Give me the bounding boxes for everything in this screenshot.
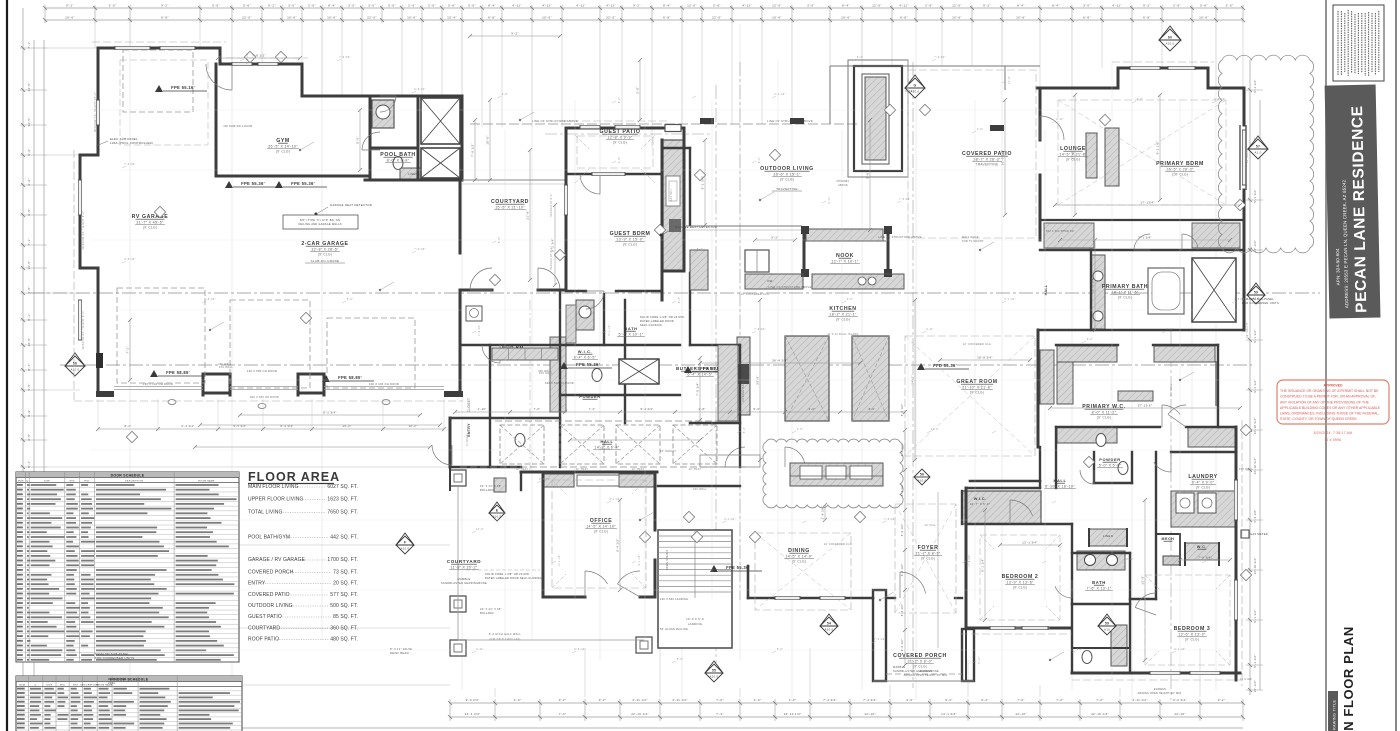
svg-text:GARAGE HEAT DETECTOR: GARAGE HEAT DETECTOR [330,203,372,207]
svg-text:CEILING AND GARAGE WALLS: CEILING AND GARAGE WALLS [298,223,342,226]
svg-text:22'-10 1/4": 22'-10 1/4" [1091,712,1109,716]
svg-text:21'-9": 21'-9" [526,210,530,219]
svg-text:A10.0: A10.0 [918,479,927,483]
svg-text:3'-1 1/2": 3'-1 1/2" [609,498,620,501]
svg-text:W.I.C.: W.I.C. [974,496,987,501]
svg-text:12'-0": 12'-0" [952,4,962,8]
svg-text:85 SQ. FT.: 85 SQ. FT. [333,614,358,620]
svg-text:5'-4 1/2": 5'-4 1/2" [900,639,904,652]
svg-text:4'-11": 4'-11" [576,4,585,8]
svg-text:3'-0": 3'-0" [348,4,356,8]
svg-text:7'-6 3/4": 7'-6 3/4" [884,518,895,521]
svg-text:9'-2": 9'-2" [1218,698,1225,702]
svg-text:22'-0": 22'-0" [606,16,616,20]
svg-text:COFFEE BAR: COFFEE BAR [741,382,745,402]
svg-text:600 X 500 DX DOOR: 600 X 500 DX DOOR [545,382,574,385]
svg-text:12'-10": 12'-10" [864,712,875,716]
svg-text:9'-1 1/2": 9'-1 1/2" [1253,609,1257,622]
svg-text:HALL: HALL [1053,478,1066,483]
svg-text:18'-8 3/4": 18'-8 3/4" [977,356,993,360]
svg-text:2'-8": 2'-8" [618,157,621,163]
svg-text:2'-4 3/4": 2'-4 3/4" [821,506,825,520]
svg-text:FPE 55.36': FPE 55.36' [241,181,265,186]
svg-text:6'-8 1/2": 6'-8 1/2" [539,478,550,481]
svg-text:POOL BATH/GYM: POOL BATH/GYM [248,535,290,541]
svg-text:POWDER: POWDER [1099,457,1121,462]
svg-text:100A (POOL CONTROLLER): 100A (POOL CONTROLLER) [110,141,153,145]
svg-text:6'-10" X 18'-10": 6'-10" X 18'-10" [1045,485,1075,489]
svg-text:4'-11": 4'-11" [1056,118,1064,121]
svg-text:13'-6" X 13'-0": 13'-6" X 13'-0" [1178,633,1206,637]
svg-text:73 SQ. FT.: 73 SQ. FT. [333,570,358,576]
svg-text:140 X 500 OH DOOR: 140 X 500 OH DOOR [247,369,277,373]
svg-text:9'-2": 9'-2" [1207,558,1213,561]
svg-text:Q: Q [35,684,37,686]
svg-text:(9' CLG): (9' CLG) [1118,296,1132,300]
svg-text:WINDOW DR. HEIGHT 14'-0": WINDOW DR. HEIGHT 14'-0" [94,92,97,132]
svg-text:(9' CLG): (9' CLG) [970,391,984,395]
svg-text:22'-0": 22'-0" [242,16,252,20]
svg-text:3'-0": 3'-0" [808,407,815,411]
svg-text:10'-6": 10'-6" [841,16,851,20]
svg-text:(9' CLG): (9' CLG) [913,665,927,669]
svg-text:ROOM NAME: ROOM NAME [198,479,215,482]
svg-text:9'-2": 9'-2" [1143,4,1151,8]
svg-text:7'-0": 7'-0" [1017,698,1024,702]
svg-text:50' GLASS RAILING: 50' GLASS RAILING [660,628,688,631]
svg-text:(9' CLG): (9' CLG) [921,557,935,561]
svg-text:BOLLARD: BOLLARD [480,612,494,615]
svg-text:26'-5" X 14'-10": 26'-5" X 14'-10" [268,145,298,149]
svg-text:18'-2" X 21'-1": 18'-2" X 21'-1" [829,313,857,317]
svg-text:FPE 58.85': FPE 58.85' [166,370,190,375]
svg-text:5'-0": 5'-0" [347,298,353,301]
svg-text:3'-1 1/2": 3'-1 1/2" [1174,648,1185,651]
svg-text:LAWS, ORDINANCES, INCLUDING TH: LAWS, ORDINANCES, INCLUDING THOSE OF THE… [1280,412,1379,416]
svg-text:56: 56 [920,473,924,477]
svg-text:8'-4": 8'-4" [1052,4,1060,8]
svg-text:10'-7" X 5'-0": 10'-7" X 5'-0" [970,502,990,506]
svg-text:HEADER AT 6'-1": HEADER AT 6'-1" [550,246,553,270]
svg-text:7'-4 3/4": 7'-4 3/4" [823,698,837,702]
svg-text:3'-0": 3'-0" [109,4,117,8]
svg-text:10'-6": 10'-6" [65,16,75,20]
svg-text:36'-4 3/4": 36'-4 3/4" [772,359,788,363]
svg-text:2'-8": 2'-8" [977,128,983,131]
svg-text:10'-6": 10'-6" [327,16,337,20]
svg-text:8'-4": 8'-4" [328,4,336,8]
svg-text:6'-8 1/2": 6'-8 1/2" [1214,98,1225,101]
svg-text:DAC WFL: DAC WFL [670,188,673,202]
svg-text:REINF BEAM: REINF BEAM [390,651,409,655]
svg-text:6'-5": 6'-5" [27,383,31,390]
svg-text:9'-2 3/4": 9'-2 3/4" [641,407,654,411]
svg-text:12'-3 3/4": 12'-3 3/4" [1091,277,1095,293]
svg-text:4'-11": 4'-11" [512,4,521,8]
svg-text:(9' CLG): (9' CLG) [780,178,794,182]
svg-text:ID # 5996: ID # 5996 [1325,438,1342,442]
svg-text:900 X 500 DH DOOR: 900 X 500 DH DOOR [250,396,279,399]
svg-text:6027 SQ. FT.: 6027 SQ. FT. [327,484,358,490]
svg-text:15'-5" X 21'-10": 15'-5" X 21'-10" [495,206,525,210]
svg-text:7'-3": 7'-3" [716,712,723,716]
svg-text:6'-8": 6'-8" [663,16,671,20]
svg-text:8'-4": 8'-4" [488,4,496,8]
svg-text:9'-2": 9'-2" [758,157,761,163]
svg-text:9'-1 1/2": 9'-1 1/2" [1253,379,1257,392]
svg-text:9'-2": 9'-2" [66,4,74,8]
svg-text:SANDBLASTED HERRINGBONE: SANDBLASTED HERRINGBONE [441,581,487,585]
svg-text:2'-6": 2'-6" [1173,4,1181,8]
svg-text:APPROVED: APPROVED [1323,384,1343,388]
svg-text:10'-2": 10'-2" [409,424,418,428]
svg-text:GARAGE / RV GARAGE: GARAGE / RV GARAGE [248,557,306,563]
svg-text:5'-0": 5'-0" [1137,98,1143,101]
svg-text:37'-19.6": 37'-19.6" [1138,404,1153,408]
svg-text:10' COFFERED CLG: 10' COFFERED CLG [741,293,769,296]
svg-text:6'-5": 6'-5" [27,286,31,293]
svg-text:5'-0": 5'-0" [777,648,783,651]
svg-text:10'-6": 10'-6" [1199,16,1209,20]
svg-text:39'-6" X 15'-1": 39'-6" X 15'-1" [773,173,801,177]
svg-text:APN: 304-90-604: APN: 304-90-604 [1335,248,1341,285]
svg-text:4'-11": 4'-11" [828,196,831,204]
svg-text:9'-1 1/2": 9'-1 1/2" [1253,654,1257,667]
svg-text:4'-11": 4'-11" [542,4,551,8]
svg-text:7'-9 1/2": 7'-9 1/2" [471,143,475,157]
svg-text:100 X 500 LANDING: 100 X 500 LANDING [660,598,688,601]
svg-text:9'-2": 9'-2" [1077,648,1083,651]
svg-text:A10.0: A10.0 [1166,42,1175,46]
svg-text:2X6 WALL: 2X6 WALL [1239,468,1254,471]
svg-text:12' TRAY: 12' TRAY [689,468,702,471]
svg-text:9'-1 1/2": 9'-1 1/2" [1253,79,1257,92]
svg-text:9'-1 1/2": 9'-1 1/2" [1253,189,1257,202]
svg-text:5'-4 1/2": 5'-4 1/2" [900,444,904,457]
svg-text:CLOSET: CLOSET [467,398,471,413]
svg-text:(9' CLG): (9' CLG) [1196,486,1210,490]
svg-text:54: 54 [827,622,831,626]
svg-text:8'-4": 8'-4" [663,4,671,8]
svg-text:31'-2" X 8'-0": 31'-2" X 8'-0" [908,660,933,664]
svg-text:THE ISSUANCE OR GRANTING OF A: THE ISSUANCE OR GRANTING OF A PERMIT SHA… [1280,389,1379,393]
svg-text:5'-6": 5'-6" [713,4,721,8]
svg-text:10'-6": 10'-6" [952,16,962,20]
svg-text:7'-1": 7'-1" [27,41,31,48]
svg-text:6'-8 1/2": 6'-8 1/2" [574,648,585,651]
svg-text:60: 60 [1168,36,1172,40]
svg-text:27'-3/4": 27'-3/4" [1253,240,1257,252]
svg-text:6'-8": 6'-8" [1143,16,1151,20]
svg-text:DESCRIPTION: DESCRIPTION [125,480,143,482]
svg-text:4'-11": 4'-11" [742,4,751,8]
svg-text:4'-11": 4'-11" [899,4,908,8]
svg-text:480 SQ. FT.: 480 SQ. FT. [330,637,358,643]
svg-text:GARAGE HEAT DETECTOR: GARAGE HEAT DETECTOR [675,225,717,229]
svg-text:7'-4 3/4": 7'-4 3/4" [863,698,877,702]
svg-text:6'-8 1/2": 6'-8 1/2" [124,258,135,261]
svg-text:14'-5" X 14'-9": 14'-5" X 14'-9" [785,555,813,559]
svg-text:9'-2": 9'-2" [511,32,518,36]
svg-text:17'-0": 17'-0" [1071,150,1075,159]
svg-text:5'-0": 5'-0" [677,658,683,661]
svg-text:7'-0": 7'-0" [1096,698,1103,702]
svg-text:7'-6 3/4": 7'-6 3/4" [934,56,945,59]
svg-text:14'-5": 14'-5" [27,337,31,346]
svg-text:A10.0: A10.0 [493,515,502,519]
svg-text:1700 SQ. FT.: 1700 SQ. FT. [327,557,358,563]
svg-text:(9' CLG): (9' CLG) [276,150,290,154]
svg-text:LINEN: LINEN [1103,534,1113,538]
svg-text:7'-6 3/4": 7'-6 3/4" [968,554,971,565]
svg-text:9'-2": 9'-2" [161,4,169,8]
svg-text:(9' CLG): (9' CLG) [1097,416,1111,420]
svg-text:2'-6": 2'-6" [428,4,436,8]
svg-text:9'-1 1/2": 9'-1 1/2" [1253,329,1257,342]
svg-text:3'-1 1/2": 3'-1 1/2" [774,93,785,96]
svg-text:POWDER: POWDER [579,394,601,399]
svg-text:8'-4": 8'-4" [842,4,850,8]
svg-text:8'-4": 8'-4" [1017,4,1025,8]
svg-text:4'-11": 4'-11" [1166,328,1174,331]
svg-text:500 SQ. FT.: 500 SQ. FT. [330,603,358,609]
svg-text:10'-6": 10'-6" [287,16,297,20]
svg-text:5'-4 1/2": 5'-4 1/2" [900,484,904,497]
svg-text:SEMA DR SUB-PANEL: SEMA DR SUB-PANEL [1242,297,1274,301]
svg-text:A10.0: A10.0 [71,368,80,372]
svg-text:4'-0": 4'-0" [789,698,796,702]
svg-text:360 SQ. FT.: 360 SQ. FT. [330,626,358,632]
svg-text:12'-7" X 10'-1": 12'-7" X 10'-1" [831,260,859,264]
svg-text:COVERED PATIO: COVERED PATIO [248,592,290,598]
svg-text:5'-4 1/2": 5'-4 1/2" [900,524,904,537]
svg-text:8'-2": 8'-2" [124,424,131,428]
svg-text:6'-8 1/2": 6'-8 1/2" [414,88,425,91]
svg-text:38'-7" X 26'-3": 38'-7" X 26'-3" [973,158,1001,162]
svg-text:FOR CONDENSER UNITS: FOR CONDENSER UNITS [95,656,134,660]
svg-text:18'-1" X 11'-5": 18'-1" X 11'-5" [1112,291,1139,295]
svg-text:2'-8": 2'-8" [847,298,853,301]
svg-text:(9' CLG): (9' CLG) [623,243,637,247]
svg-text:12'-10 3/4": 12'-10 3/4" [1253,417,1257,434]
svg-text:WID: WID [70,480,75,482]
svg-text:6'-4 1/2": 6'-4 1/2" [616,538,620,552]
svg-text:6'-5": 6'-5" [27,208,31,215]
svg-text:4'-11": 4'-11" [1126,558,1134,561]
svg-text:W.I.C.: W.I.C. [578,349,593,354]
svg-text:ROOF PATIO: ROOF PATIO [248,637,279,643]
svg-text:DM WALL: DM WALL [1170,383,1173,397]
svg-text:5'-6": 5'-6" [1200,4,1208,8]
svg-text:17'-13/4": 17'-13/4" [1140,201,1155,205]
svg-text:2'-6": 2'-6" [408,4,416,8]
svg-text:Q: Q [26,480,28,482]
svg-text:SIZE: SIZE [44,480,50,482]
svg-text:STATE, COUNTY, OR TOWN OF QUEE: STATE, COUNTY, OR TOWN OF QUEEN CREEK. [1280,417,1358,421]
svg-text:5'-6": 5'-6" [356,136,360,143]
svg-text:APPLICABLE BUILDING CODES OR A: APPLICABLE BUILDING CODES OR ANY OTHER A… [1280,406,1381,410]
svg-text:10'-2": 10'-2" [343,424,352,428]
svg-text:3'-1 1/2": 3'-1 1/2" [1004,298,1015,301]
svg-text:6'-8": 6'-8" [900,16,908,20]
svg-text:5'-0": 5'-0" [678,297,681,303]
svg-text:12'-0": 12'-0" [687,4,697,8]
svg-text:(9' CLG): (9' CLG) [1185,638,1199,642]
svg-text:SELF-CLOSING: SELF-CLOSING [640,324,662,327]
svg-text:10' COFFERED CLG: 10' COFFERED CLG [824,543,852,546]
svg-text:6'-8": 6'-8" [161,16,169,20]
svg-text:2'-8": 2'-8" [698,407,705,411]
svg-text:3'-1 1/2": 3'-1 1/2" [724,518,735,521]
svg-text:9'-2": 9'-2" [945,698,952,702]
svg-text:COVERED PORCH: COVERED PORCH [248,570,294,576]
svg-text:4'-11": 4'-11" [606,4,615,8]
svg-text:7'-3": 7'-3" [559,712,566,716]
svg-text:22'-10 1/4": 22'-10 1/4" [784,712,802,716]
svg-text:6'-8 1/2": 6'-8 1/2" [246,52,249,63]
svg-text:9'-4" X 9'-0": 9'-4" X 9'-0" [1192,481,1215,485]
svg-text:12'-10": 12'-10" [1015,712,1026,716]
svg-text:6'-8 1/2": 6'-8 1/2" [204,298,215,301]
svg-text:56: 56 [73,362,77,366]
svg-text:UPPER FLOOR LIVING: UPPER FLOOR LIVING [248,497,303,503]
svg-text:SLAB-ON-GRADE: SLAB-ON-GRADE [311,259,340,263]
svg-text:577 SQ. FT.: 577 SQ. FT. [330,592,358,598]
svg-text:E: E [496,509,499,513]
svg-text:7'-6 3/4": 7'-6 3/4" [1234,298,1245,301]
svg-text:A10.0: A10.0 [401,547,410,551]
svg-text:10'-0": 10'-0" [486,135,490,144]
svg-text:7'-8 1/2": 7'-8 1/2" [252,54,266,58]
svg-text:5'-4 1/2": 5'-4 1/2" [900,604,904,617]
svg-text:AWNING OPEN HEIGHT 36" MIN.: AWNING OPEN HEIGHT 36" MIN. [1138,692,1183,695]
svg-text:9'-2": 9'-2" [983,4,991,8]
svg-text:24' SOFFIT: 24' SOFFIT [660,449,676,453]
svg-text:2'-0": 2'-0" [636,86,640,93]
svg-text:16'-9 1/2": 16'-9 1/2" [1001,150,1005,166]
svg-text:10'-0 X 5'-0: 10'-0 X 5'-0 [686,617,704,621]
svg-text:22'-0": 22'-0" [712,16,722,20]
svg-text:8'-0" X 8'-8": 8'-0" X 8'-8" [387,159,410,163]
svg-text:4'-11 1/2": 4'-11 1/2" [632,698,647,702]
svg-text:8'-6": 8'-6" [868,407,875,411]
svg-text:ELEC PANEL 'A': ELEC PANEL 'A' [108,677,132,681]
svg-text:7'-6 3/4": 7'-6 3/4" [339,56,350,59]
svg-text:A10.0: A10.0 [710,675,719,679]
svg-text:9'-2": 9'-2" [697,248,703,251]
svg-text:3'-1 1/2": 3'-1 1/2" [558,554,561,565]
svg-text:6'-4" X 6'-5": 6'-4" X 6'-5" [574,356,597,360]
svg-text:4'-11 1/2": 4'-11 1/2" [1132,698,1147,702]
svg-text:8'-1": 8'-1" [27,363,31,370]
svg-text:442 SQ. FT.: 442 SQ. FT. [330,535,358,541]
svg-text:20 SQ. FT.: 20 SQ. FT. [333,581,358,587]
svg-text:2'-6": 2'-6" [308,4,316,8]
svg-text:5'-1 3/4": 5'-1 3/4" [701,176,705,190]
svg-text:24" X 24" X 48": 24" X 24" X 48" [480,485,502,488]
svg-text:3'-0": 3'-0" [807,4,815,8]
svg-text:SIZE: SIZE [46,684,52,686]
svg-text:3'-1 1/2": 3'-1 1/2" [638,554,641,565]
svg-text:NO KAM DN LOUVR: NO KAM DN LOUVR [224,124,253,128]
svg-text:G: G [914,84,917,88]
svg-text:MECH: MECH [1162,537,1175,541]
svg-text:AWNING OPEN HEIGHT 36" MIN.: AWNING OPEN HEIGHT 36" MIN. [904,674,949,677]
svg-text:5'-0": 5'-0" [498,237,501,243]
svg-text:42 X 42 DUAL ISLAND: 42 X 42 DUAL ISLAND [827,333,858,336]
svg-text:5'-6": 5'-6" [243,4,251,8]
svg-text:10'-6": 10'-6" [542,16,552,20]
svg-text:12'-0": 12'-0" [931,428,939,431]
svg-text:HGT: HGT [73,684,79,686]
svg-text:COURTYARD: COURTYARD [248,626,280,632]
svg-text:22'-0": 22'-0" [367,16,377,20]
svg-text:NUM: NUM [18,480,24,482]
svg-text:3'-0": 3'-0" [1226,4,1234,8]
svg-text:10'-6": 10'-6" [407,16,417,20]
svg-text:CHIMNEY: CHIMNEY [836,180,849,183]
svg-text:FOR CONDENSER UNITS: FOR CONDENSER UNITS [1242,301,1279,305]
svg-text:6'-2 3/4": 6'-2 3/4" [182,424,195,428]
svg-text:9'-0 3/4": 9'-0 3/4" [1173,698,1187,702]
svg-text:24" X 24" X 48": 24" X 24" X 48" [480,608,502,611]
svg-text:4'-0": 4'-0" [514,698,521,702]
svg-text:9'-2": 9'-2" [559,698,566,702]
svg-text:SOLID CORE 1-3/8" OR 20 MIN.: SOLID CORE 1-3/8" OR 20 MIN. [485,573,530,576]
svg-text:8/20/2024, 7:38:17 AM: 8/20/2024, 7:38:17 AM [1314,431,1352,435]
svg-text:WINDOW DR. HEIGHT 8'-0": WINDOW DR. HEIGHT 8'-0" [82,311,85,350]
svg-text:FPE 55.16': FPE 55.16' [171,85,195,90]
svg-text:(9' CLG): (9' CLG) [594,530,608,534]
svg-text:BATH: BATH [1092,580,1106,585]
svg-text:12'-10 3/4": 12'-10 3/4" [1253,457,1257,474]
svg-text:BATH: BATH [624,326,637,331]
svg-text:FPE 58.85': FPE 58.85' [338,375,362,380]
svg-text:4'-11": 4'-11" [978,656,981,664]
svg-text:12'-0": 12'-0" [476,528,484,531]
svg-text:7'-1": 7'-1" [126,346,130,353]
svg-text:100 X 100 OH DOOR: 100 X 100 OH DOOR [369,382,399,386]
svg-text:GUEST PATIO: GUEST PATIO [248,614,282,620]
svg-text:12'-10": 12'-10" [1174,712,1185,716]
svg-text:RATED LABELED DOOR SELF-CLOSI: RATED LABELED DOOR SELF-CLOSING [485,577,542,580]
svg-text:7'-6 3/4": 7'-6 3/4" [754,328,765,331]
svg-text:3'-0": 3'-0" [368,4,376,8]
svg-text:7'-1": 7'-1" [27,238,31,245]
svg-text:MAIN FLOOR LIVING: MAIN FLOOR LIVING [248,484,299,490]
svg-text:COURTYARD: COURTYARD [447,559,481,564]
svg-text:7'-0 3/4": 7'-0 3/4" [696,382,700,396]
svg-text:ABOVE: ABOVE [838,184,848,187]
svg-text:4'-0": 4'-0" [906,698,913,702]
svg-text:FPE 55.36': FPE 55.36' [291,181,315,186]
svg-text:6'-8": 6'-8" [488,16,496,20]
svg-text:2'-8": 2'-8" [502,93,508,96]
svg-text:5'-4 1/2": 5'-4 1/2" [900,404,904,417]
svg-text:12' CLG: 12' CLG [599,448,610,451]
svg-text:7'-6": 7'-6" [533,407,540,411]
svg-text:562 X 500 SHWR DR: 562 X 500 SHWR DR [1046,230,1074,233]
svg-text:7'-6 3/4": 7'-6 3/4" [874,638,885,641]
svg-text:27'-3/4": 27'-3/4" [1253,680,1257,692]
svg-text:LINE OF STRUCTURE ABOVE: LINE OF STRUCTURE ABOVE [768,285,811,289]
svg-text:SOLID CORE 1-3/8" OR 20 MIN.: SOLID CORE 1-3/8" OR 20 MIN. [640,316,685,319]
svg-text:DOOR SCHEDULE: DOOR SCHEDULE [111,473,145,477]
svg-text:9'-2": 9'-2" [618,97,621,103]
svg-text:14'-5" X 14'-10": 14'-5" X 14'-10" [586,525,616,529]
svg-text:32'-8" X 28'-5": 32'-8" X 28'-5" [311,248,339,252]
svg-text:55: 55 [712,669,716,673]
